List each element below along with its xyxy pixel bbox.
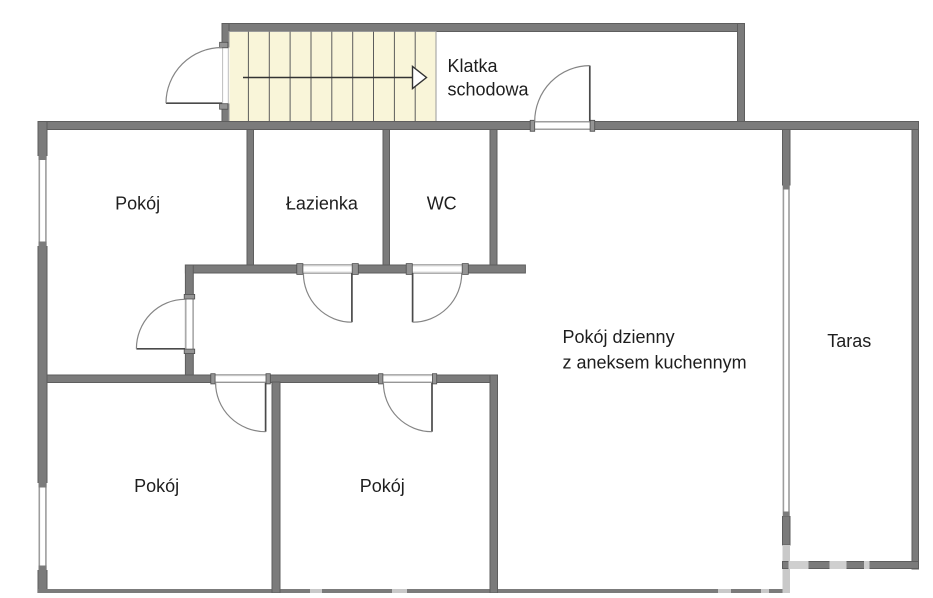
svg-text:Pokój: Pokój: [360, 476, 405, 496]
svg-text:schodowa: schodowa: [448, 80, 530, 100]
svg-text:Pokój dzienny: Pokój dzienny: [563, 327, 675, 347]
svg-text:WC: WC: [427, 194, 457, 214]
svg-text:Pokój: Pokój: [134, 476, 179, 496]
svg-text:Łazienka: Łazienka: [286, 194, 359, 214]
svg-text:Pokój: Pokój: [115, 194, 160, 214]
svg-text:Klatka: Klatka: [448, 56, 499, 76]
svg-text:z aneksem kuchennym: z aneksem kuchennym: [563, 353, 747, 373]
svg-text:Taras: Taras: [827, 331, 871, 351]
